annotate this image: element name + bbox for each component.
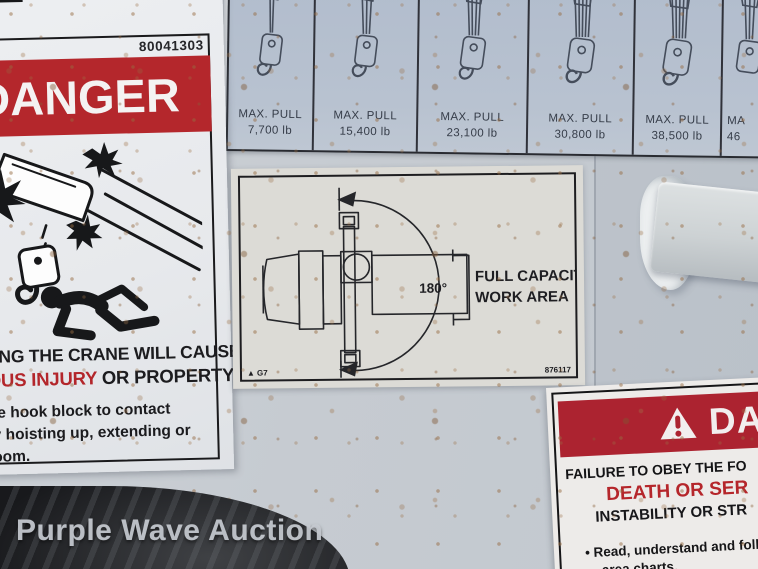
danger-decal-left: 80041303 DANGER KING THE CRANE bbox=[0, 0, 234, 475]
max-pull-label: MAX. PULL bbox=[238, 106, 302, 123]
crane-truck-top-view-diagram: 180° FULL CAPACITY WORK AREA ▲ G7 876117 bbox=[240, 174, 576, 379]
work-area-caption-line2: WORK AREA bbox=[475, 288, 569, 306]
detail-line: boom. bbox=[0, 448, 30, 467]
pull-column: MAX. PULL 38,500 lb bbox=[634, 0, 724, 156]
max-pull-value: 15,400 lb bbox=[339, 123, 390, 140]
pull-column: MAX. PULL 7,700 lb bbox=[228, 0, 316, 150]
grab-handle bbox=[650, 181, 758, 284]
injury-red-text: IOUS INJURY bbox=[0, 367, 97, 391]
bullet-text: Read, understand and foll bbox=[589, 537, 758, 560]
bullet-item: • Read, understand and foll bbox=[585, 537, 758, 560]
pull-column: MAX. PULL 15,400 lb bbox=[314, 0, 420, 152]
danger-decal-bottom-right: DA FAILURE TO OBEY THE FO DEATH OR SER I… bbox=[546, 376, 758, 569]
hook-block-icon bbox=[558, 0, 605, 95]
danger-header-band: DANGER bbox=[0, 55, 212, 137]
part-number: 80041303 bbox=[139, 38, 204, 55]
danger-header-band: DA bbox=[558, 390, 758, 457]
watermark-text: Purple Wave Auction bbox=[16, 514, 323, 548]
max-pull-label: MAX. PULL bbox=[333, 107, 397, 124]
pull-column: MAX. PULL 23,100 lb bbox=[418, 0, 530, 153]
warning-triangle-icon bbox=[658, 406, 698, 442]
max-pull-value: 46 bbox=[727, 129, 741, 145]
decal-code-left: G7 bbox=[257, 368, 268, 377]
max-pull-capacity-decal: MAX. PULL 7,700 lb MAX. PULL 15,400 lb M… bbox=[226, 0, 758, 159]
max-pull-label: MAX. PULL bbox=[645, 112, 709, 129]
max-pull-label: MAX. PULL bbox=[440, 109, 504, 126]
hook-block-icon bbox=[655, 0, 702, 97]
hook-block-icon bbox=[726, 0, 758, 98]
danger-word: DANGER bbox=[0, 67, 180, 127]
decal-code-right: 876117 bbox=[545, 365, 572, 374]
bullet-item-continued: area charts. bbox=[602, 559, 678, 569]
max-pull-value: 7,700 lb bbox=[248, 122, 292, 139]
hook-block-icon bbox=[450, 0, 497, 94]
work-area-decal: 180° FULL CAPACITY WORK AREA ▲ G7 876117 bbox=[231, 165, 585, 389]
boom-impact-illustration bbox=[0, 136, 205, 347]
decal-border-frame: 180° FULL CAPACITY WORK AREA ▲ G7 876117 bbox=[238, 172, 578, 382]
injury-black-text: OR PROPERTY bbox=[97, 364, 235, 388]
work-area-caption-line1: FULL CAPACITY bbox=[475, 267, 576, 285]
danger-word-partial: DA bbox=[708, 398, 758, 443]
max-pull-value: 38,500 lb bbox=[651, 128, 702, 145]
max-pull-value: 30,800 lb bbox=[554, 126, 605, 143]
triangle-mark-icon: ▲ bbox=[247, 369, 255, 378]
angle-label: 180° bbox=[419, 281, 447, 296]
pull-column: MAX. PULL 30,800 lb bbox=[528, 0, 636, 155]
hook-block-icon bbox=[248, 0, 295, 91]
partial-letter bbox=[0, 0, 23, 3]
pull-column: MA 46 bbox=[722, 0, 758, 157]
hook-block-icon bbox=[343, 0, 390, 92]
truck-panel-photo: MAX. PULL 7,700 lb MAX. PULL 15,400 lb M… bbox=[0, 0, 758, 569]
max-pull-label: MAX. PULL bbox=[548, 110, 612, 127]
decal-border-frame: DA FAILURE TO OBEY THE FO DEATH OR SER I… bbox=[551, 381, 758, 569]
max-pull-label: MA bbox=[727, 113, 745, 129]
max-pull-value: 23,100 lb bbox=[446, 125, 497, 142]
